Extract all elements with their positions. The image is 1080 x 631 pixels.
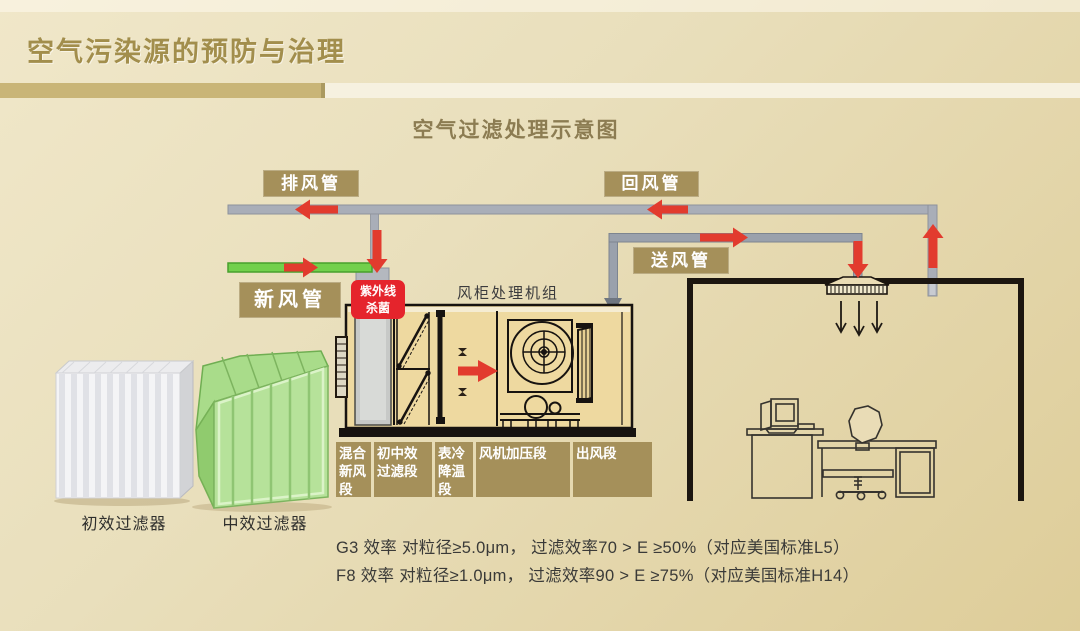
desk-top (818, 441, 936, 448)
efficiency-note-f8: F8 效率 对粒径≥1.0μm， 过滤效率90 > E ≥75%（对应美国标准H… (336, 562, 859, 586)
uv-label-line2: 杀菌 (351, 300, 405, 317)
uv-label-line1: 紫外线 (351, 283, 405, 300)
ahu-section-outlet: 出风段 (573, 442, 652, 497)
ahu-title: 风柜处理机组 (457, 282, 559, 303)
return-arrow (647, 200, 688, 220)
fresh-duct-label: 新风管 (239, 282, 341, 318)
ahu-section-cooling: 表冷降温段 (435, 442, 473, 497)
cooling-coil (576, 323, 593, 403)
supply-duct-label: 送风管 (633, 247, 729, 274)
person (849, 406, 882, 450)
efficiency-note-g3: G3 效率 对粒径≥5.0μm， 过滤效率70 > E ≥50%（对应美国标准L… (336, 534, 850, 558)
primary-filter-image (54, 361, 193, 506)
supply-arrow (700, 228, 748, 248)
diffuser-arrow (848, 241, 869, 278)
crt-monitor (761, 399, 798, 433)
keyboard (798, 424, 814, 429)
uv-sterilizer-label: 紫外线 杀菌 (351, 280, 405, 319)
room-outline (687, 278, 1024, 501)
medium-filter-image (192, 351, 332, 512)
intake-louver (336, 337, 347, 397)
fresh-arrow (284, 258, 318, 278)
office-furniture (747, 399, 936, 500)
office-chair (836, 477, 885, 500)
ahu-section-fan: 风机加压段 (476, 442, 570, 497)
room-return-arrow (923, 224, 944, 268)
exhaust-arrow (295, 200, 338, 220)
ahu-section-mixing: 混合新风段 (336, 442, 371, 497)
ahu-section-filter: 初中效过滤段 (374, 442, 432, 497)
airflow-arrows (836, 301, 882, 335)
primary-filter-caption: 初效过滤器 (44, 510, 204, 534)
exhaust-duct-label: 排风管 (263, 170, 359, 197)
return-duct-label: 回风管 (604, 171, 699, 197)
medium-filter-caption: 中效过滤器 (185, 510, 345, 534)
